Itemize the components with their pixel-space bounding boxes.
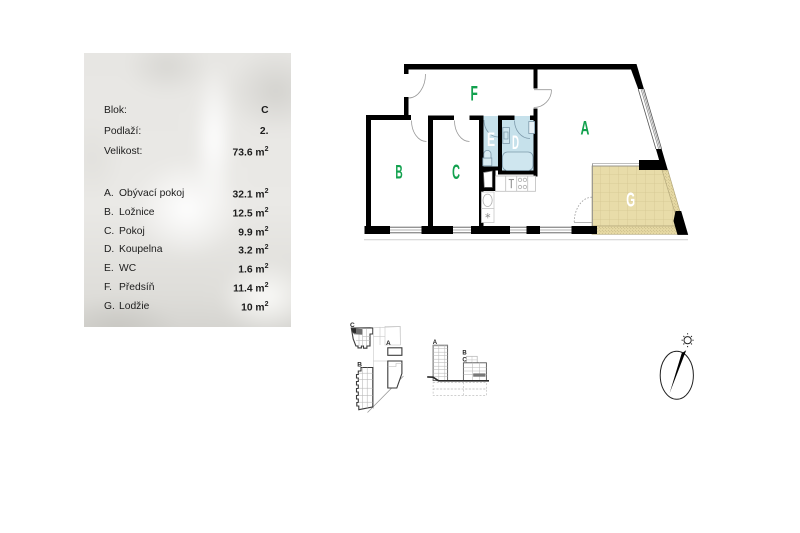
- svg-text:G: G: [626, 189, 635, 211]
- svg-text:E: E: [487, 129, 495, 151]
- svg-text:B: B: [395, 162, 402, 183]
- svg-text:A: A: [581, 118, 590, 139]
- svg-text:B: B: [462, 350, 467, 356]
- svg-text:C: C: [452, 160, 460, 184]
- svg-text:D: D: [512, 133, 519, 155]
- svg-text:A: A: [386, 340, 391, 347]
- svg-text:F: F: [471, 82, 478, 105]
- svg-text:C: C: [350, 322, 355, 329]
